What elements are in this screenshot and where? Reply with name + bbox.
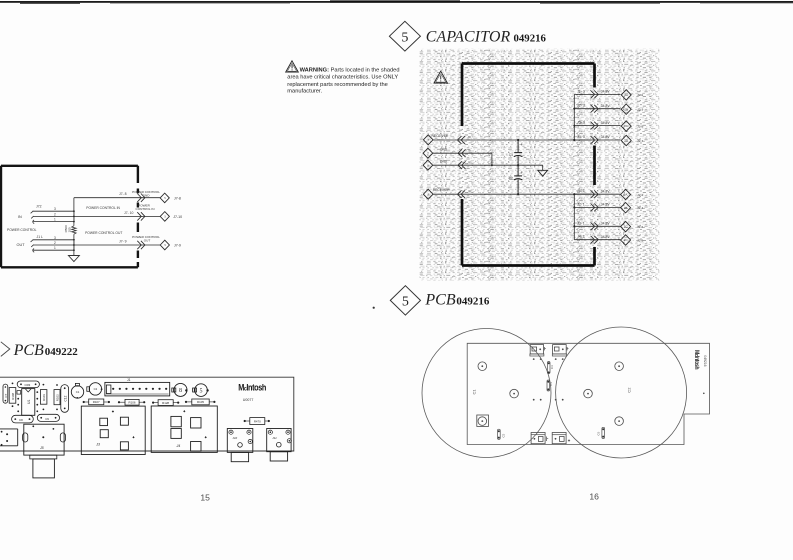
svg-text:34.8V: 34.8V	[601, 222, 611, 226]
svg-text:J11: J11	[272, 436, 277, 440]
svg-text:RECEIVER: RECEIVER	[433, 188, 450, 192]
svg-text:C1: C1	[76, 390, 80, 394]
svg-text:JB: JB	[468, 148, 471, 152]
svg-text:C2: C2	[94, 387, 98, 391]
svg-text:J1: J1	[127, 378, 131, 382]
svg-text:+: +	[520, 142, 523, 147]
svg-text:1: 1	[54, 246, 56, 250]
svg-text:3: 3	[164, 243, 166, 247]
svg-text:J72: J72	[36, 205, 42, 209]
svg-text:R107: R107	[93, 400, 100, 404]
svg-text:R108: R108	[11, 392, 15, 399]
svg-text:area have critical characteris: area have critical characteristics. Use …	[287, 75, 398, 81]
svg-text:3: 3	[164, 196, 166, 200]
svg-text:POWER CONTROL OUT: POWER CONTROL OUT	[85, 231, 122, 235]
svg-text:GND: GND	[143, 194, 151, 198]
svg-text:R128: R128	[162, 401, 169, 405]
svg-text:5: 5	[401, 30, 408, 45]
svg-text:C4: C4	[549, 382, 553, 386]
svg-text:049216: 049216	[456, 295, 490, 307]
svg-text:5: 5	[402, 294, 409, 309]
svg-text:C8: C8	[19, 418, 23, 422]
svg-text:1: 1	[54, 218, 56, 222]
svg-text:JR: JR	[468, 135, 471, 139]
svg-text:GND: GND	[440, 159, 448, 163]
svg-text:C7: C7	[4, 393, 8, 397]
svg-text:2: 2	[427, 151, 429, 155]
svg-text:WARNING: Parts located in the: WARNING: Parts located in the shaded	[300, 68, 400, 74]
svg-text:U0077: U0077	[243, 398, 254, 402]
svg-text:3: 3	[164, 215, 166, 219]
svg-text:OUT: OUT	[144, 239, 151, 243]
svg-text:2: 2	[54, 241, 56, 245]
svg-text:16: 16	[589, 492, 599, 502]
svg-text:C9: C9	[45, 417, 49, 421]
svg-text:RECEIVER: RECEIVER	[432, 134, 449, 138]
svg-text:C3: C3	[550, 365, 554, 369]
svg-text:34.8V: 34.8V	[601, 135, 611, 139]
svg-text:CONTROL IN: CONTROL IN	[136, 207, 155, 211]
svg-text:J1- 3: J1- 3	[577, 89, 585, 93]
svg-text:2A: 2A	[624, 93, 628, 97]
svg-text:J4: J4	[176, 444, 181, 448]
svg-text:2B: 2B	[624, 206, 628, 210]
svg-text:J2- 3: J2- 3	[577, 104, 585, 108]
svg-text:J5: J5	[39, 446, 44, 450]
svg-text:5: 5	[200, 388, 203, 394]
svg-text:C1: C1	[472, 389, 477, 395]
svg-text:15: 15	[200, 492, 210, 502]
svg-text:J2-2: J2-2	[637, 193, 643, 197]
svg-text:34.8V: 34.8V	[601, 189, 611, 193]
svg-text:J4- 1: J4- 1	[577, 235, 585, 239]
svg-text:POWER CONTROL: POWER CONTROL	[7, 228, 37, 232]
svg-text:3: 3	[54, 236, 56, 240]
svg-text:+: +	[520, 170, 523, 175]
svg-text:POWER CONTROL IN: POWER CONTROL IN	[86, 206, 120, 210]
svg-text:CAPACITOR: CAPACITOR	[426, 29, 511, 46]
svg-text:2: 2	[54, 212, 56, 216]
svg-text:R101: R101	[42, 394, 46, 401]
svg-text:J1- 1: J1- 1	[577, 189, 585, 193]
svg-text:JC: JC	[468, 160, 471, 164]
svg-text:JR: JR	[468, 189, 471, 193]
svg-text:C12: C12	[63, 395, 67, 401]
svg-text:049216: 049216	[703, 355, 707, 366]
svg-text:049216: 049216	[514, 32, 547, 44]
svg-text:J2-8: J2-8	[637, 239, 643, 243]
svg-text:J1 L: J1 L	[37, 235, 44, 239]
svg-text:J7-8: J7-8	[174, 196, 181, 200]
svg-text:R102: R102	[55, 394, 59, 401]
svg-text:34.8V: 34.8V	[601, 235, 611, 239]
svg-text:J2-6: J2-6	[637, 225, 643, 229]
svg-text:J2-1: J2-1	[637, 93, 643, 97]
svg-text:34.8V: 34.8V	[601, 121, 611, 125]
svg-text:C6: C6	[597, 431, 601, 435]
svg-text:J7- 10: J7- 10	[124, 211, 134, 215]
svg-text:CR3: CR3	[25, 383, 31, 387]
svg-text:J2-7: J2-7	[637, 139, 643, 143]
svg-text:OUT: OUT	[17, 243, 26, 247]
svg-text:100: 100	[68, 227, 72, 232]
svg-text:McIntosh: McIntosh	[693, 350, 700, 370]
svg-text:PCB: PCB	[13, 342, 44, 359]
svg-text:J7-10: J7-10	[173, 215, 182, 219]
svg-text:J7-9: J7-9	[174, 243, 181, 247]
svg-text:J4- 3: J4- 3	[577, 135, 585, 139]
svg-text:J7- 8: J7- 8	[119, 192, 127, 196]
svg-text:R470: R470	[254, 420, 261, 424]
svg-text:manufacturer.: manufacturer.	[287, 88, 322, 94]
svg-text:8: 8	[179, 388, 182, 394]
svg-text:R105: R105	[197, 400, 204, 404]
svg-text:replacement parts recommended: replacement parts recommended by the	[287, 82, 388, 88]
svg-text:C2: C2	[509, 176, 513, 180]
svg-text:J3- 1: J3- 1	[577, 221, 585, 225]
svg-text:J2-3: J2-3	[637, 108, 643, 112]
svg-text:J2-5: J2-5	[637, 124, 643, 128]
svg-text:IN: IN	[18, 215, 22, 219]
svg-text:R106: R106	[129, 401, 136, 405]
svg-text:J3- 3: J3- 3	[577, 121, 585, 125]
svg-text:McIntosh: McIntosh	[238, 382, 266, 393]
svg-text:34.8V: 34.8V	[601, 104, 611, 108]
svg-text:J7- 9: J7- 9	[119, 240, 127, 244]
svg-text:J10: J10	[233, 436, 238, 440]
svg-text:2B: 2B	[624, 107, 628, 111]
svg-text:3: 3	[54, 207, 56, 211]
svg-text:3: 3	[427, 163, 429, 167]
svg-text:J3: J3	[95, 442, 100, 446]
svg-text:PCB: PCB	[424, 292, 455, 309]
svg-text:GND: GND	[440, 147, 448, 151]
svg-text:C1: C1	[509, 153, 513, 157]
svg-text:J2-4: J2-4	[637, 206, 643, 210]
svg-text:049222: 049222	[45, 346, 79, 358]
svg-text:U1: U1	[27, 400, 31, 404]
svg-text:34.8V: 34.8V	[601, 90, 611, 94]
svg-text:J2- 1: J2- 1	[577, 202, 585, 206]
svg-text:C5: C5	[502, 433, 506, 437]
svg-text:2A: 2A	[624, 193, 628, 197]
svg-text:34.8V: 34.8V	[601, 203, 611, 207]
svg-text:C2: C2	[627, 387, 632, 393]
